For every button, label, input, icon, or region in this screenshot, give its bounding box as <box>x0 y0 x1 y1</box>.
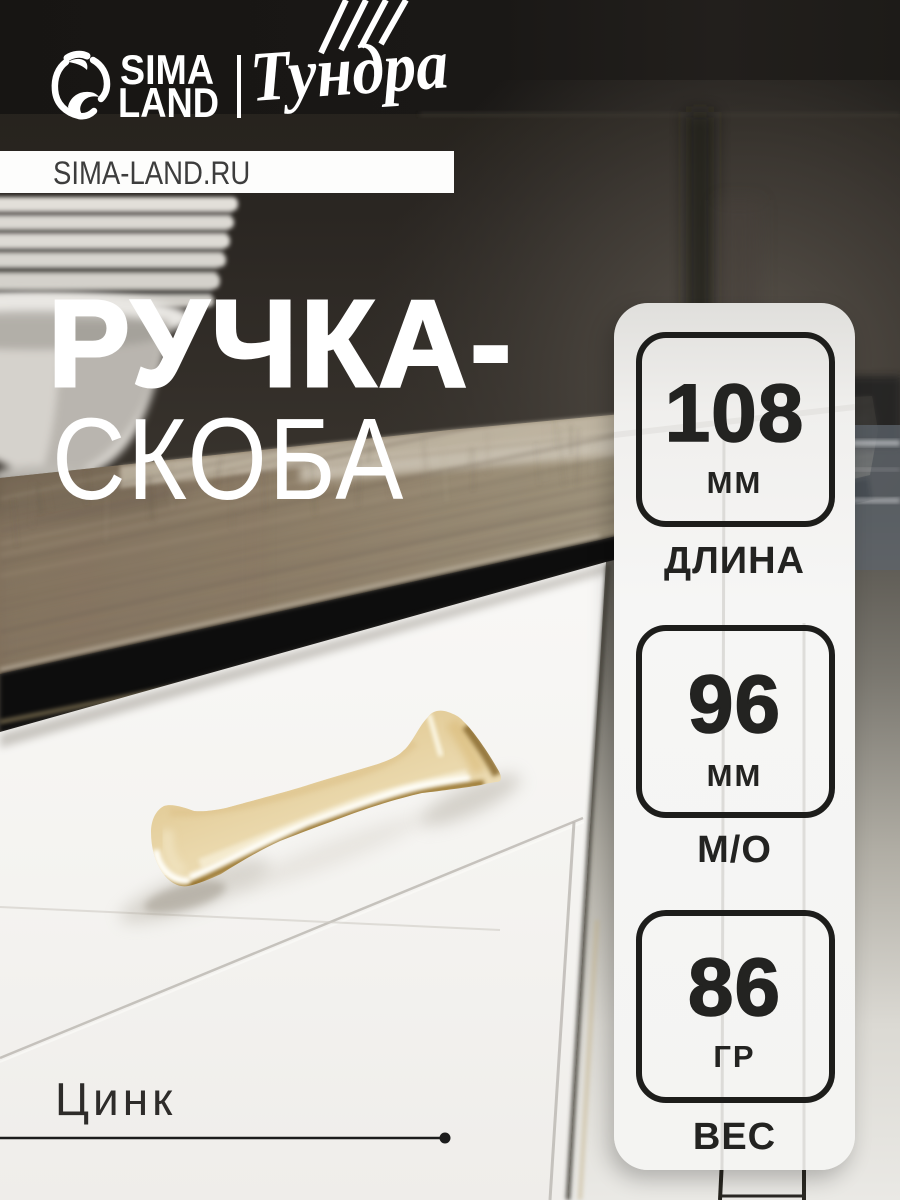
svg-text:Тундра: Тундра <box>248 25 451 117</box>
svg-text:LAND: LAND <box>118 79 219 126</box>
